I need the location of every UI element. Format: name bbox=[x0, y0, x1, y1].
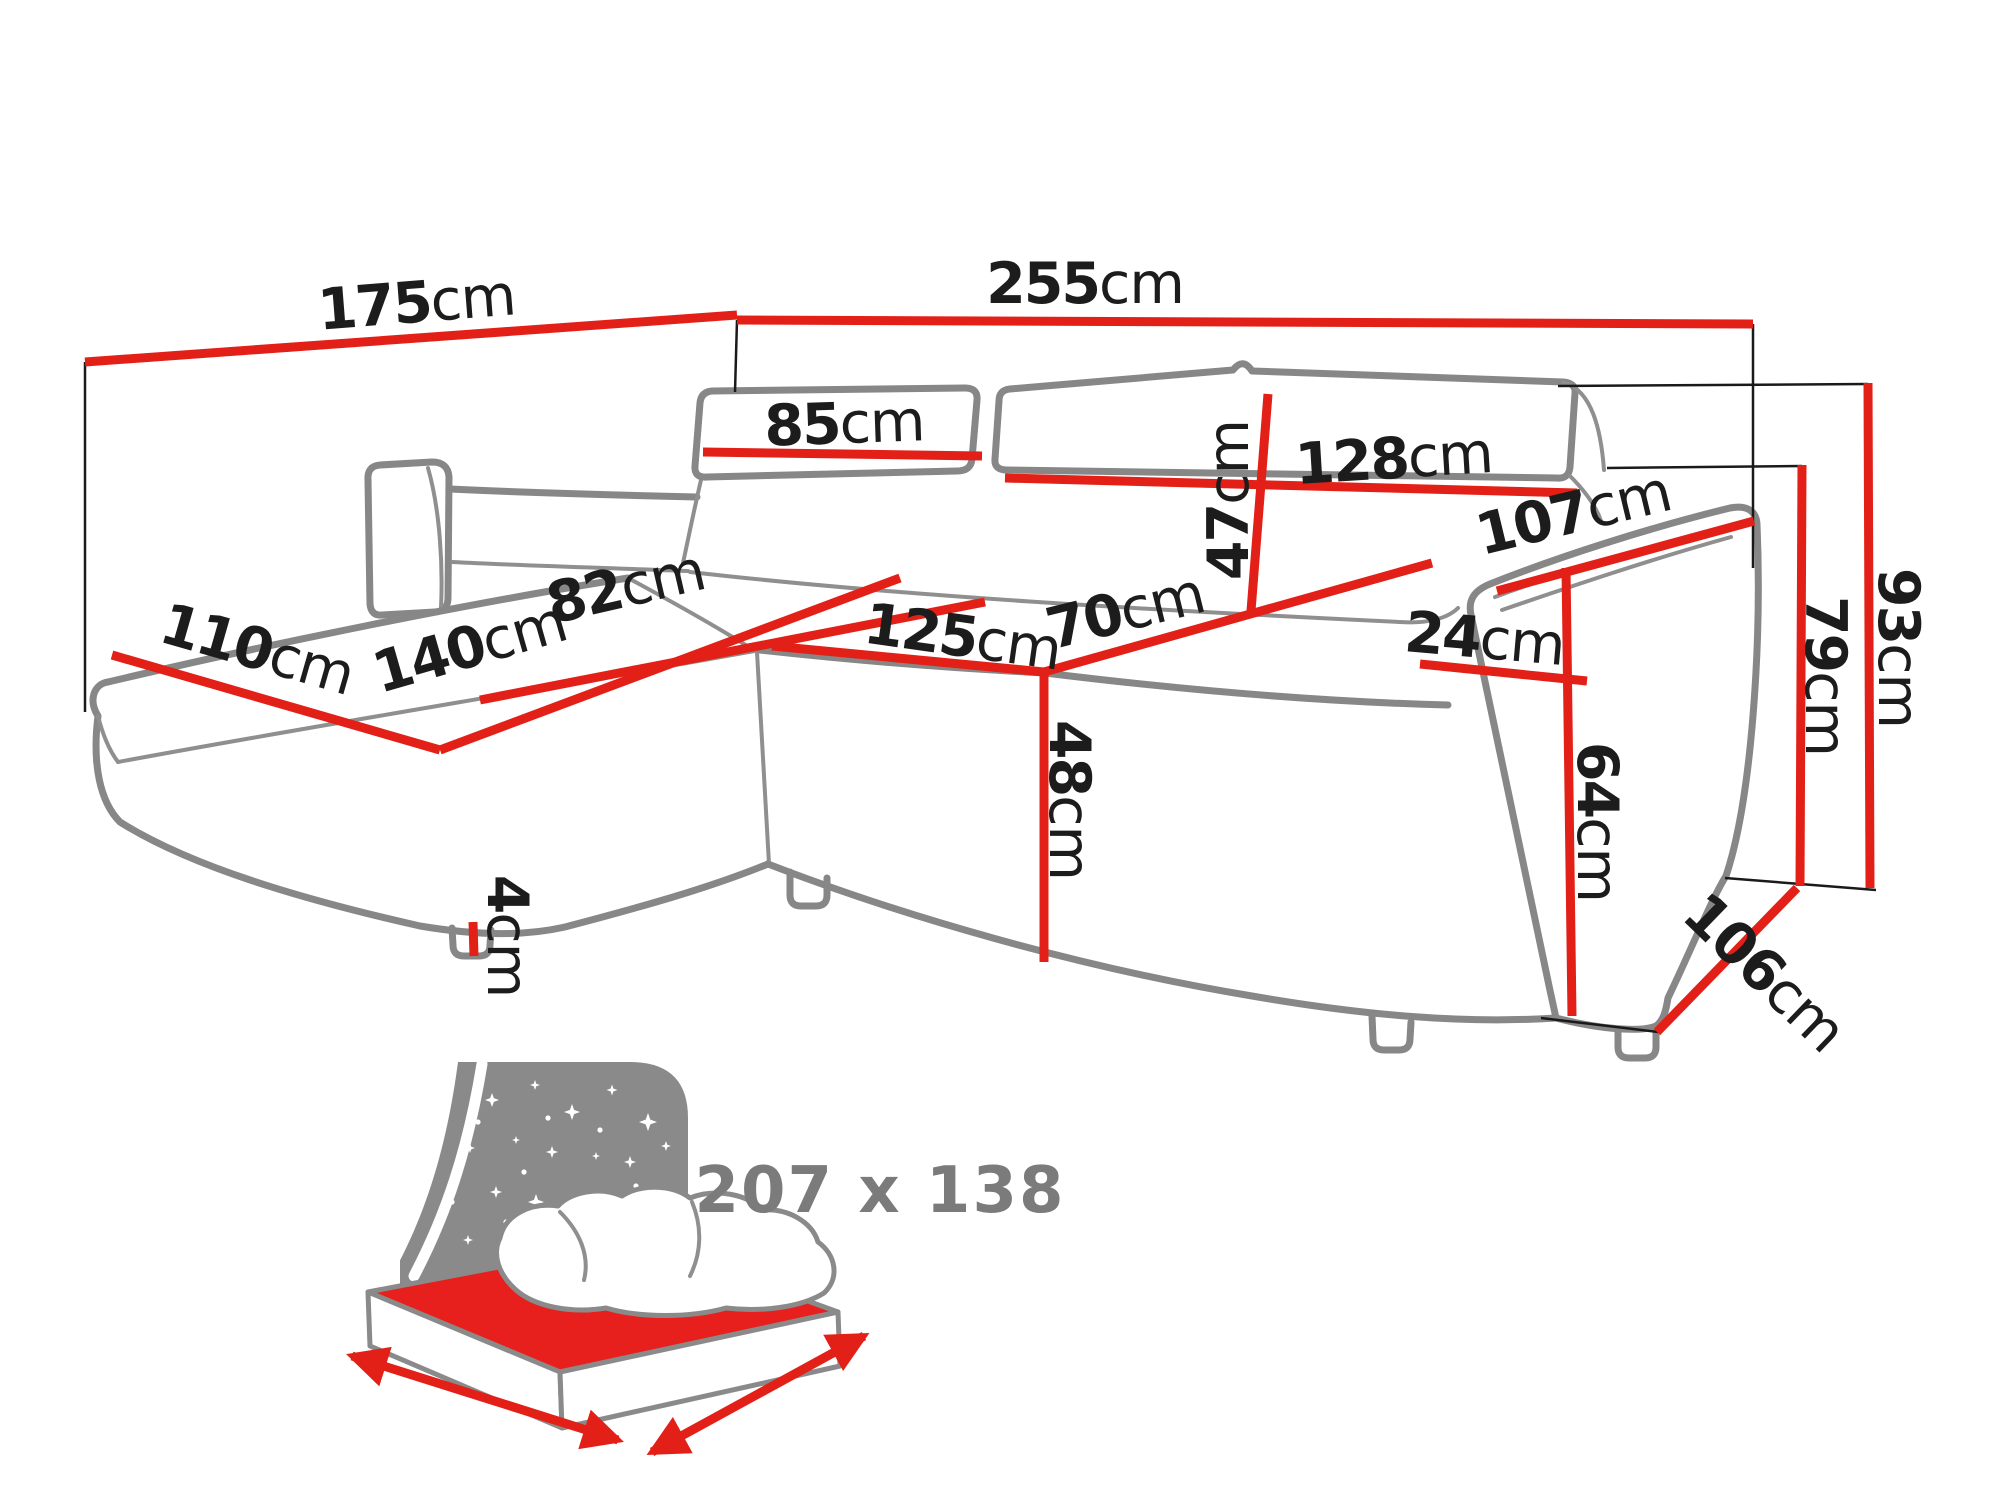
dimension-label-125: 125cm bbox=[860, 591, 1065, 684]
dimension-line-4 bbox=[473, 922, 474, 956]
dimension-label-106: 106cm bbox=[1670, 880, 1858, 1065]
chaise-armrest-outline bbox=[368, 462, 449, 615]
extension-line-corner bbox=[735, 320, 737, 392]
sofa-legs bbox=[452, 872, 1656, 1058]
dimension-label-64: 64cm bbox=[1564, 742, 1630, 902]
dimension-label-128: 128cm bbox=[1293, 420, 1495, 498]
chaise-armrest-inner-edge bbox=[428, 468, 442, 608]
chaise-armrest-panel bbox=[368, 462, 449, 615]
dimension-line-255 bbox=[737, 320, 1753, 324]
dimension-label-255: 255cm bbox=[986, 251, 1184, 317]
dimension-label-47: 47cm bbox=[1196, 420, 1262, 580]
extension-line-93-top bbox=[1558, 384, 1868, 386]
seat-front-bottom-edge bbox=[768, 864, 1556, 1020]
dimension-label-110: 110cm bbox=[153, 591, 361, 709]
diagram-canvas: 175cm 255cm 85cm 128cm 47cm 107cm 82cm 1… bbox=[0, 0, 2000, 1500]
extension-lines bbox=[85, 320, 1876, 1032]
sofa-leg bbox=[1372, 1016, 1411, 1050]
dimension-label-82: 82cm bbox=[540, 537, 711, 637]
dimension-label-4: 4cm bbox=[474, 875, 540, 998]
back-panel-top-edge bbox=[450, 489, 697, 497]
sleeping-area-icon: 207 x 138 bbox=[352, 1062, 1066, 1452]
dimension-label-93: 93cm bbox=[1865, 568, 1931, 728]
chaise-seat-junction-edge bbox=[628, 578, 769, 864]
dimension-label-48: 48cm bbox=[1036, 720, 1102, 880]
sofa-dimension-diagram: 175cm 255cm 85cm 128cm 47cm 107cm 82cm 1… bbox=[0, 0, 2000, 1500]
sofa-leg bbox=[1618, 1032, 1656, 1058]
sofa-drawing bbox=[93, 364, 1758, 1058]
dimension-label-79: 79cm bbox=[1792, 596, 1858, 756]
chaise-left-front-outline bbox=[93, 682, 768, 934]
dimension-label-24: 24cm bbox=[1402, 599, 1567, 679]
sleeping-area-label: 207 x 138 bbox=[694, 1154, 1065, 1228]
dimension-label-85: 85cm bbox=[763, 388, 925, 460]
chaise-left-corner-edge bbox=[98, 716, 118, 762]
